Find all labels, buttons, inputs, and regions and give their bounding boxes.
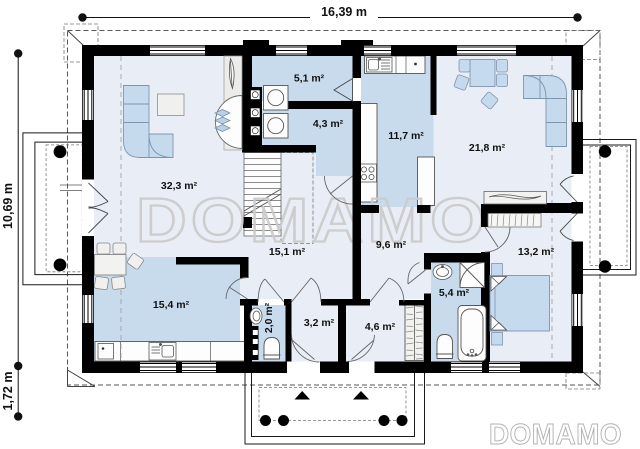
svg-text:5,1 m²: 5,1 m²: [294, 73, 325, 85]
svg-text:21,8 m²: 21,8 m²: [469, 142, 506, 154]
svg-text:2,0 m²: 2,0 m²: [263, 302, 275, 333]
svg-text:4,6 m²: 4,6 m²: [365, 321, 396, 333]
svg-text:10,69 m: 10,69 m: [1, 183, 15, 229]
svg-text:15,4 m²: 15,4 m²: [153, 299, 190, 311]
svg-text:5,4 m²: 5,4 m²: [439, 287, 470, 299]
svg-text:11,7 m²: 11,7 m²: [388, 130, 424, 142]
svg-text:13,2 m²: 13,2 m²: [518, 246, 555, 258]
svg-text:15,1 m²: 15,1 m²: [269, 246, 306, 258]
svg-text:3,2 m²: 3,2 m²: [304, 317, 335, 329]
svg-text:DOMAMO: DOMAMO: [489, 419, 622, 449]
svg-text:1,72 m: 1,72 m: [1, 372, 15, 411]
svg-text:DOMAMO: DOMAMO: [136, 187, 489, 256]
svg-text:4,3 m²: 4,3 m²: [313, 118, 344, 130]
svg-text:16,39 m: 16,39 m: [321, 5, 367, 19]
svg-text:32,3 m²: 32,3 m²: [161, 180, 198, 192]
svg-text:9,6 m²: 9,6 m²: [376, 239, 407, 251]
